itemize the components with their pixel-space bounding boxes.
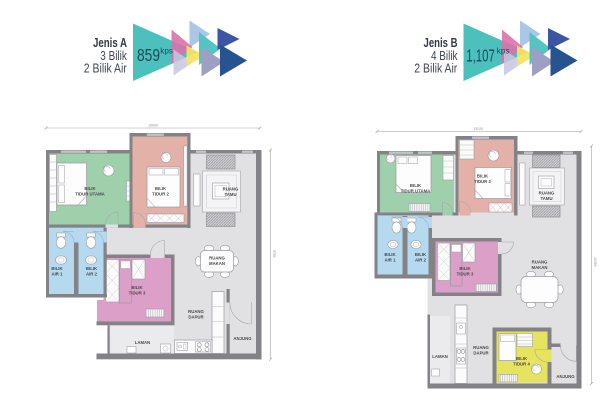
svg-text:TAMU: TAMU xyxy=(224,192,236,197)
svg-text:BILIK: BILIK xyxy=(459,266,471,271)
svg-text:DAPUR: DAPUR xyxy=(473,351,489,356)
svg-text:LAMAN: LAMAN xyxy=(432,354,448,359)
svg-text:BILIK: BILIK xyxy=(415,252,427,257)
svg-text:AIR 2: AIR 2 xyxy=(415,258,427,263)
svg-text:AIR 1: AIR 1 xyxy=(385,258,397,263)
svg-text:TIDUR 3: TIDUR 3 xyxy=(129,291,146,296)
svg-text:Jenis B: Jenis B xyxy=(424,35,458,50)
svg-text:AIR 1: AIR 1 xyxy=(52,272,64,277)
svg-text:13100: 13100 xyxy=(473,127,483,131)
svg-text:TIDUR UTAMA: TIDUR UTAMA xyxy=(75,192,105,197)
svg-text:LAMAN: LAMAN xyxy=(135,340,151,345)
svg-text:859: 859 xyxy=(137,45,160,65)
svg-text:BILIK: BILIK xyxy=(384,252,396,257)
svg-text:RUANG: RUANG xyxy=(539,191,555,196)
svg-text:kps: kps xyxy=(160,46,173,56)
svg-text:RUANG: RUANG xyxy=(188,309,204,314)
svg-text:BILIK: BILIK xyxy=(410,183,422,188)
svg-text:ANJUNG: ANJUNG xyxy=(233,336,252,341)
svg-text:RUANG: RUANG xyxy=(473,345,489,350)
svg-text:Jenis A: Jenis A xyxy=(93,35,127,50)
svg-text:MAKAN: MAKAN xyxy=(532,265,548,270)
svg-text:10350: 10350 xyxy=(593,257,597,267)
svg-text:BILIK: BILIK xyxy=(86,266,98,271)
svg-text:TIDUR 2: TIDUR 2 xyxy=(474,179,491,184)
svg-text:2 Bilik Air: 2 Bilik Air xyxy=(414,62,457,76)
svg-text:2 Bilik Air: 2 Bilik Air xyxy=(84,62,127,76)
svg-text:MAKAN: MAKAN xyxy=(209,261,225,266)
svg-text:10000: 10000 xyxy=(148,124,158,128)
svg-text:BILIK: BILIK xyxy=(516,356,528,361)
svg-text:TIDUR 2: TIDUR 2 xyxy=(152,192,169,197)
svg-text:BILIK: BILIK xyxy=(155,186,167,191)
svg-text:RUANG: RUANG xyxy=(209,256,225,261)
svg-text:BILIK: BILIK xyxy=(51,266,63,271)
svg-text:RUANG: RUANG xyxy=(223,187,239,192)
svg-text:kps: kps xyxy=(497,45,510,55)
svg-text:BILIK: BILIK xyxy=(131,285,143,290)
svg-text:DAPUR: DAPUR xyxy=(188,315,204,320)
svg-text:TIDUR UTAMA: TIDUR UTAMA xyxy=(401,189,431,194)
svg-text:TAMU: TAMU xyxy=(540,196,552,201)
svg-text:BILIK: BILIK xyxy=(84,186,96,191)
svg-text:RUANG: RUANG xyxy=(532,260,548,265)
svg-text:TIDUR 3: TIDUR 3 xyxy=(457,272,474,277)
svg-text:ANJUNG: ANJUNG xyxy=(556,374,575,379)
svg-text:9750: 9750 xyxy=(272,250,276,258)
svg-text:BILIK: BILIK xyxy=(477,174,489,179)
svg-text:TIDUR 4: TIDUR 4 xyxy=(513,362,530,367)
svg-text:AIR 2: AIR 2 xyxy=(86,272,98,277)
svg-text:1,107: 1,107 xyxy=(466,45,495,65)
